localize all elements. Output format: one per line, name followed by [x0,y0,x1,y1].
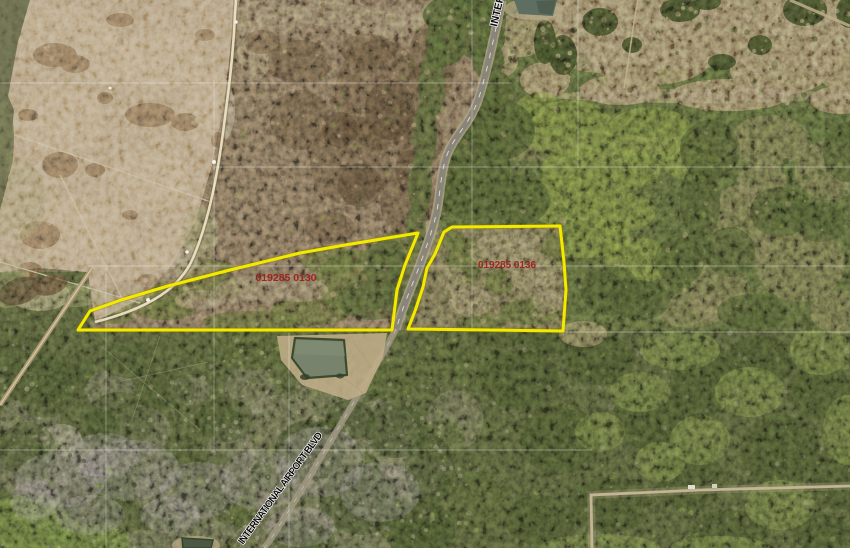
svg-text:019285 0130: 019285 0130 [256,272,317,284]
svg-text:019285 0136: 019285 0136 [478,260,536,271]
